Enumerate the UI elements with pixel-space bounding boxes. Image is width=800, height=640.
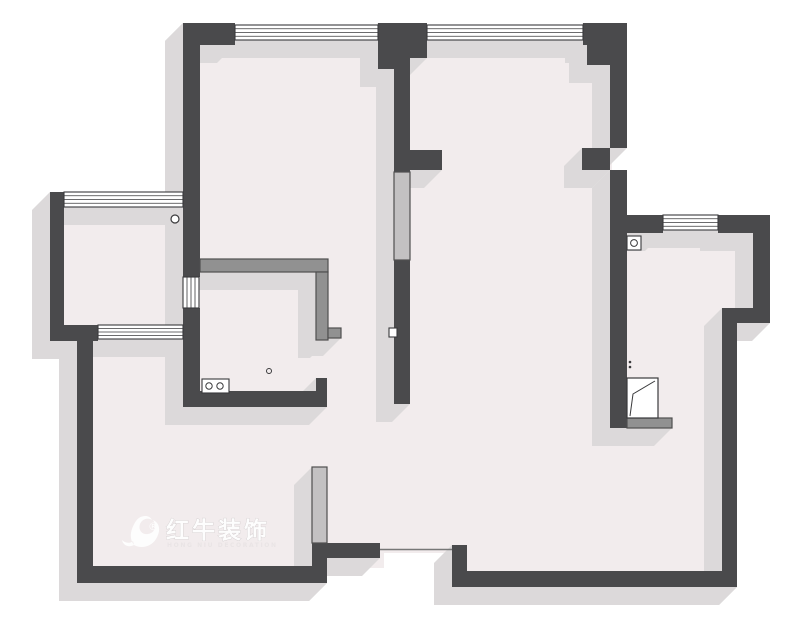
window-bedroom-top <box>235 25 378 40</box>
wall-socket <box>389 328 397 337</box>
wall-segment <box>582 148 610 170</box>
wall-segment <box>316 378 327 391</box>
floor-plan-page: ® 红牛装饰 HONG NIU DECORATION <box>0 0 800 640</box>
water-heater <box>627 378 658 418</box>
wall-segment <box>452 545 467 587</box>
pipe-symbol <box>171 215 179 223</box>
wall-segment <box>452 571 737 587</box>
window-balcony-top <box>64 192 183 207</box>
wall-segment <box>627 215 663 233</box>
door-hinge-dot <box>629 361 632 364</box>
wall-segment <box>610 43 627 148</box>
wall-segment <box>583 23 627 45</box>
gas-meter-box <box>627 236 641 250</box>
window-balcony-bottom <box>98 325 183 339</box>
door-hinge-dot <box>629 366 632 369</box>
wall-segment <box>77 566 327 583</box>
wall-segment <box>753 233 770 308</box>
wall-segment <box>77 341 93 583</box>
wall-segment <box>610 233 627 428</box>
wall-segment <box>610 170 627 233</box>
wall-segment <box>410 43 427 58</box>
floor-area <box>408 40 612 553</box>
wall-segment <box>312 543 380 558</box>
wall-segment <box>50 192 64 325</box>
gas-stove <box>202 379 229 393</box>
light-wall-segment-bottom <box>312 467 327 543</box>
wall-segment <box>50 325 98 341</box>
wall-segment <box>410 150 442 170</box>
wall-segment <box>394 26 410 172</box>
counter-end-tab <box>328 328 341 338</box>
gas-meter <box>627 236 641 250</box>
appliance-sill <box>627 418 672 428</box>
floor-area <box>467 543 612 573</box>
watermark-subtitle: HONG NIU DECORATION <box>167 542 278 549</box>
registered-mark: ® <box>148 520 159 533</box>
wall-segment <box>718 215 770 233</box>
wall-segment <box>587 45 613 65</box>
sliding-door-kitchen <box>183 277 199 308</box>
counter-top <box>200 259 328 272</box>
light-wall-segment-center <box>394 172 410 260</box>
wall-segment <box>722 323 737 587</box>
floor-plan: ® 红牛装饰 HONG NIU DECORATION <box>0 0 800 640</box>
wall-segment <box>722 308 770 323</box>
water-heater-body <box>627 378 658 418</box>
counter-right <box>316 272 328 340</box>
window-bathroom-top <box>663 215 718 230</box>
watermark-title: 红牛装饰 <box>166 517 270 544</box>
wall-segment <box>183 23 200 277</box>
window-living-top <box>427 25 583 40</box>
